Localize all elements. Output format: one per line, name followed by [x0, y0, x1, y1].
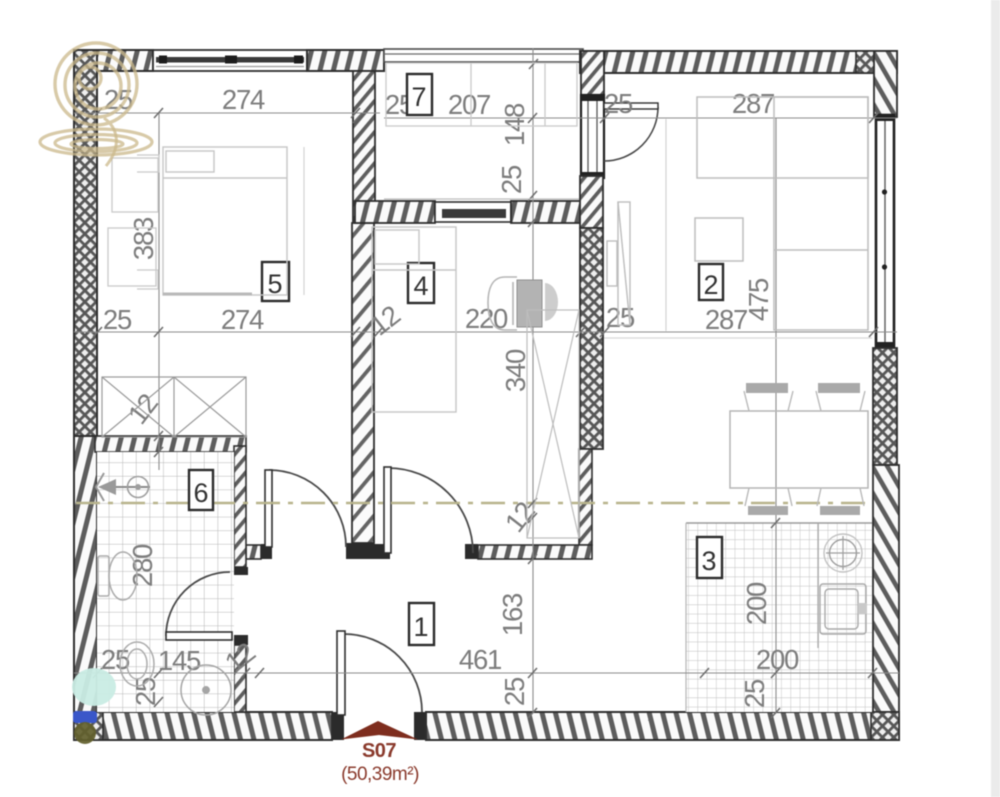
svg-text:7: 7: [411, 82, 426, 112]
svg-text:6: 6: [193, 478, 208, 508]
svg-text:25: 25: [103, 304, 132, 335]
svg-text:4: 4: [413, 271, 428, 301]
svg-text:274: 274: [222, 84, 265, 115]
svg-text:148: 148: [499, 103, 530, 146]
svg-text:145: 145: [158, 645, 201, 676]
svg-text:200: 200: [756, 644, 799, 675]
svg-text:25: 25: [496, 165, 527, 194]
svg-text:287: 287: [732, 88, 774, 119]
svg-text:2: 2: [703, 270, 718, 300]
svg-text:280: 280: [127, 544, 158, 587]
svg-text:287: 287: [705, 304, 747, 335]
svg-text:1: 1: [413, 612, 428, 642]
svg-text:25: 25: [604, 88, 633, 119]
svg-text:340: 340: [500, 349, 531, 392]
svg-text:207: 207: [448, 89, 490, 120]
svg-text:3: 3: [701, 546, 716, 576]
svg-text:163: 163: [497, 593, 528, 636]
svg-text:S07: S07: [362, 740, 396, 762]
svg-text:25: 25: [739, 679, 770, 708]
svg-text:200: 200: [741, 582, 772, 625]
svg-text:274: 274: [221, 304, 264, 335]
svg-text:(50,39m²): (50,39m²): [341, 764, 419, 785]
svg-text:461: 461: [459, 644, 501, 675]
svg-text:25: 25: [499, 677, 530, 706]
svg-text:383: 383: [128, 217, 159, 260]
svg-text:475: 475: [743, 278, 774, 321]
svg-text:25: 25: [130, 677, 161, 706]
